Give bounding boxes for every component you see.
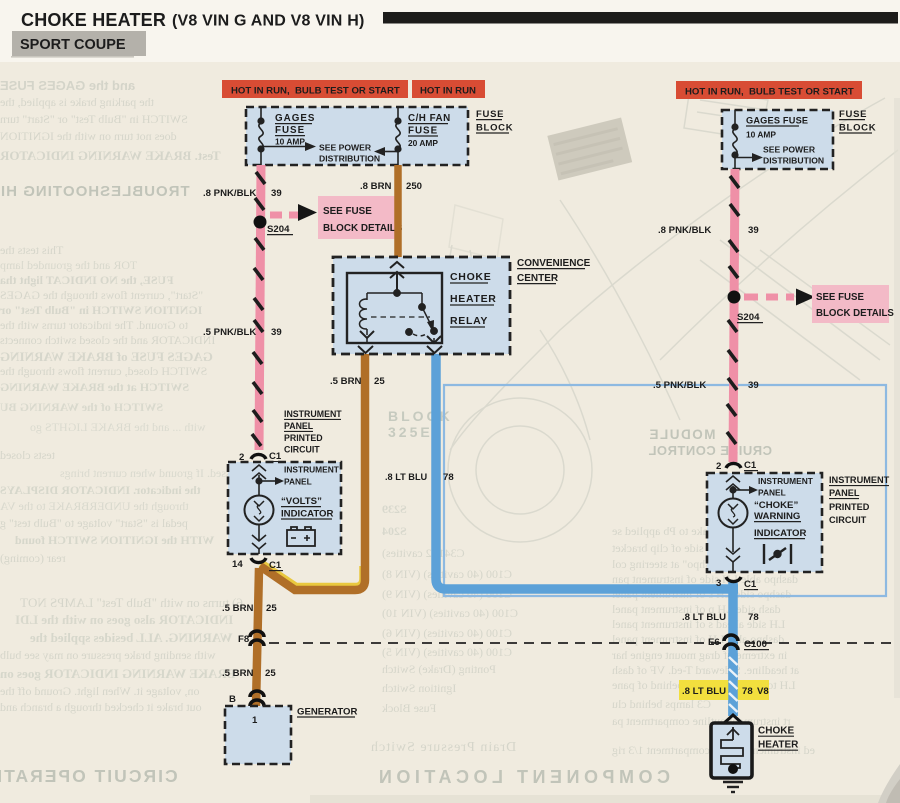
svg-text:FUSE: FUSE (476, 109, 504, 120)
svg-text:39: 39 (271, 327, 282, 338)
svg-text:78: 78 (443, 472, 454, 483)
svg-text:.8 BRN: .8 BRN (360, 181, 392, 192)
svg-text:HOT IN RUN, BULB TEST OR STAR: HOT IN RUN, BULB TEST OR START (685, 87, 854, 98)
svg-text:PRINTED: PRINTED (284, 433, 323, 443)
svg-text:CENTER: CENTER (517, 273, 559, 284)
svg-text:.8 PNK/BLK: .8 PNK/BLK (203, 188, 256, 199)
svg-text:20 AMP: 20 AMP (408, 138, 438, 148)
svg-text:C100: C100 (744, 639, 767, 650)
svg-text:BLOCK: BLOCK (839, 123, 876, 134)
svg-text:CIRCUIT: CIRCUIT (284, 445, 320, 455)
svg-text:25: 25 (265, 668, 276, 679)
svg-text:INSTRUMENT: INSTRUMENT (758, 476, 814, 486)
svg-text:SEE FUSE: SEE FUSE (323, 206, 372, 217)
svg-text:CHOKE: CHOKE (450, 271, 491, 283)
svg-text:“VOLTS”: “VOLTS” (281, 496, 322, 507)
svg-text:3: 3 (716, 578, 721, 589)
svg-text:.5 BRN: .5 BRN (222, 668, 254, 679)
svg-text:PANEL: PANEL (758, 488, 786, 498)
svg-text:PANEL: PANEL (284, 477, 312, 487)
svg-text:HOT IN RUN, BULB TEST OR STAR: HOT IN RUN, BULB TEST OR START (231, 86, 400, 97)
svg-text:14: 14 (232, 559, 243, 570)
svg-text:78: 78 (742, 686, 753, 697)
svg-text:25: 25 (374, 376, 385, 387)
svg-text:DISTRIBUTION: DISTRIBUTION (763, 156, 824, 166)
svg-text:F8: F8 (238, 634, 250, 645)
svg-text:HOT IN RUN: HOT IN RUN (420, 86, 476, 97)
svg-text:(V8 VIN G AND V8 VIN H): (V8 VIN G AND V8 VIN H) (172, 13, 364, 30)
svg-text:CHOKE: CHOKE (758, 726, 794, 737)
svg-text:BLOCK: BLOCK (476, 123, 513, 134)
svg-text:SPORT COUPE: SPORT COUPE (20, 37, 126, 53)
svg-text:GAGES: GAGES (275, 113, 315, 124)
svg-text:INDICATOR: INDICATOR (754, 528, 806, 539)
svg-text:.5 PNK/BLK: .5 PNK/BLK (203, 327, 256, 338)
svg-text:INSTRUMENT: INSTRUMENT (284, 465, 340, 475)
svg-text:PANEL: PANEL (829, 488, 860, 498)
svg-text:GAGES FUSE: GAGES FUSE (746, 116, 808, 126)
svg-text:.5 BRN: .5 BRN (330, 376, 362, 387)
svg-text:CHOKE HEATER: CHOKE HEATER (21, 10, 166, 30)
svg-text:BLOCK DETAILS: BLOCK DETAILS (323, 223, 403, 234)
svg-text:.5 PNK/BLK: .5 PNK/BLK (653, 380, 706, 391)
svg-text:FUSE: FUSE (408, 126, 438, 137)
svg-text:2: 2 (716, 461, 721, 472)
svg-text:.8 LT BLU: .8 LT BLU (682, 612, 726, 623)
svg-text:RELAY: RELAY (450, 315, 488, 327)
svg-text:.8 LT BLU: .8 LT BLU (385, 472, 428, 482)
svg-text:V8: V8 (757, 686, 769, 697)
svg-text:78: 78 (748, 612, 759, 623)
svg-text:INSTRUMENT: INSTRUMENT (829, 475, 890, 485)
svg-text:10 AMP: 10 AMP (746, 130, 776, 140)
svg-text:SEE FUSE: SEE FUSE (816, 292, 864, 303)
svg-text:“CHOKE”: “CHOKE” (754, 500, 798, 511)
svg-text:39: 39 (748, 380, 759, 391)
svg-text:.5 BRN: .5 BRN (222, 603, 254, 614)
svg-text:C1: C1 (269, 560, 282, 571)
svg-text:CONVENIENCE: CONVENIENCE (517, 258, 591, 269)
svg-text:250: 250 (406, 181, 422, 192)
svg-text:E6: E6 (708, 637, 720, 648)
svg-text:WARNING: WARNING (754, 511, 800, 522)
svg-text:HEATER: HEATER (758, 740, 799, 751)
svg-text:PANEL: PANEL (284, 421, 314, 431)
svg-text:SEE POWER: SEE POWER (319, 143, 372, 153)
svg-text:B: B (229, 694, 236, 705)
svg-text:1: 1 (252, 715, 258, 726)
svg-text:SEE POWER: SEE POWER (763, 145, 816, 155)
svg-text:INSTRUMENT: INSTRUMENT (284, 409, 342, 419)
svg-text:39: 39 (271, 188, 282, 199)
svg-text:FUSE: FUSE (839, 109, 867, 120)
svg-text:CIRCUIT: CIRCUIT (829, 515, 867, 525)
svg-text:S204: S204 (737, 312, 760, 323)
svg-text:BLOCK DETAILS: BLOCK DETAILS (816, 308, 894, 319)
svg-text:GENERATOR: GENERATOR (297, 707, 357, 718)
svg-text:DISTRIBUTION: DISTRIBUTION (319, 154, 380, 164)
svg-text:10 AMP: 10 AMP (275, 137, 305, 147)
svg-text:C1: C1 (744, 460, 757, 471)
svg-text:C1: C1 (744, 579, 757, 590)
svg-text:C/H FAN: C/H FAN (408, 113, 451, 124)
svg-text:25: 25 (266, 603, 277, 614)
svg-text:C1: C1 (269, 451, 282, 462)
svg-text:39: 39 (748, 225, 759, 236)
svg-text:S204: S204 (267, 224, 290, 235)
svg-text:HEATER: HEATER (450, 293, 497, 305)
svg-text:.8 LT BLU: .8 LT BLU (682, 686, 726, 697)
svg-text:FUSE: FUSE (275, 125, 305, 136)
svg-text:PRINTED: PRINTED (829, 502, 870, 512)
svg-text:INDICATOR: INDICATOR (281, 509, 333, 520)
svg-text:.8 PNK/BLK: .8 PNK/BLK (658, 225, 711, 236)
